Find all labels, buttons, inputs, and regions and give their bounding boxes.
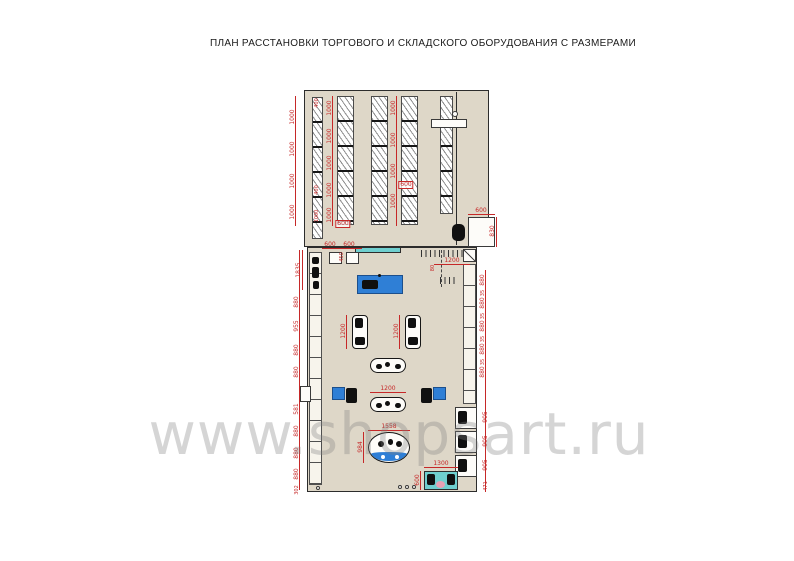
- dimension-label: 80: [430, 265, 436, 271]
- dimension-label: 1200: [341, 323, 347, 338]
- dimension-label: 1200: [380, 386, 395, 392]
- dimension-label: 600: [475, 208, 486, 214]
- watermark: www.shopsart.ru: [148, 400, 649, 468]
- dimension-label: 1200: [444, 258, 459, 264]
- dimension-label: 880: [294, 344, 300, 355]
- dimension-label: 1000: [391, 163, 397, 178]
- dimension-label: 880: [480, 320, 486, 331]
- dimension-label: 880: [480, 366, 486, 377]
- dimension-label: 1835: [296, 262, 302, 277]
- dimension-label: 450: [339, 252, 345, 262]
- dimension-label: 1000: [327, 100, 333, 115]
- dimension-label: 1000: [327, 128, 333, 143]
- dimension-label: 471: [483, 481, 489, 491]
- dimension-label: 1000: [327, 155, 333, 170]
- dimension-label: 35: [480, 313, 486, 319]
- dimension-label: 302: [294, 485, 300, 495]
- dimension-label: 1200: [394, 323, 400, 338]
- dimension-label: 880: [480, 274, 486, 285]
- dimension-label: 1000: [290, 204, 296, 219]
- dimension-label: 400: [314, 185, 320, 195]
- dimension-label: 1000: [290, 141, 296, 156]
- dimension-label: 830: [490, 225, 496, 236]
- dimension-label: 600: [415, 474, 421, 485]
- dimension-label: 880: [294, 366, 300, 377]
- dimension-label: 880: [294, 296, 300, 307]
- dimension-label: 400: [314, 98, 320, 108]
- dimension-label: 35: [480, 336, 486, 342]
- drawing-page: ПЛАН РАССТАНОВКИ ТОРГОВОГО И СКЛАДСКОГО …: [0, 0, 794, 561]
- dimension-label: 1000: [391, 100, 397, 115]
- dimension-label: 1000: [327, 207, 333, 222]
- dimension-label: 35: [480, 359, 486, 365]
- dimension-label: 1000: [290, 173, 296, 188]
- dimension-label: 880: [294, 468, 300, 479]
- dimension-label: 1000: [327, 182, 333, 197]
- dimension-label: 600: [398, 181, 413, 189]
- dimension-label: 35: [480, 290, 486, 296]
- dimension-label: 600: [343, 242, 354, 248]
- dimension-label: 1000: [391, 193, 397, 208]
- dimension-label: 1000: [314, 210, 320, 223]
- dimension-label: 880: [480, 297, 486, 308]
- dimension-labels-layer: 1000100010001000400400100010001000100010…: [0, 0, 794, 561]
- dimension-label: 1000: [391, 132, 397, 147]
- dimension-label: 600: [335, 220, 350, 228]
- dimension-label: 880: [480, 343, 486, 354]
- dimension-label: 600: [324, 242, 335, 248]
- dimension-label: 955: [294, 320, 300, 331]
- dimension-label: 1000: [290, 109, 296, 124]
